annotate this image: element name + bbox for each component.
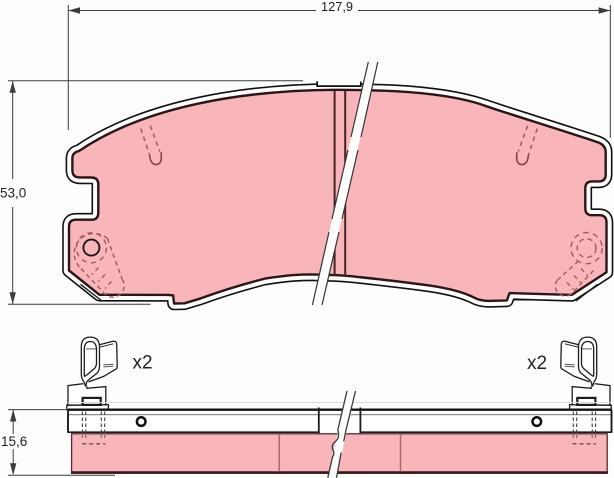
svg-text:15,6: 15,6 — [1, 434, 27, 449]
svg-text:x2: x2 — [133, 353, 153, 374]
svg-text:127,9: 127,9 — [321, 0, 353, 14]
svg-text:x2: x2 — [527, 353, 547, 374]
svg-text:53,0: 53,0 — [0, 186, 26, 201]
